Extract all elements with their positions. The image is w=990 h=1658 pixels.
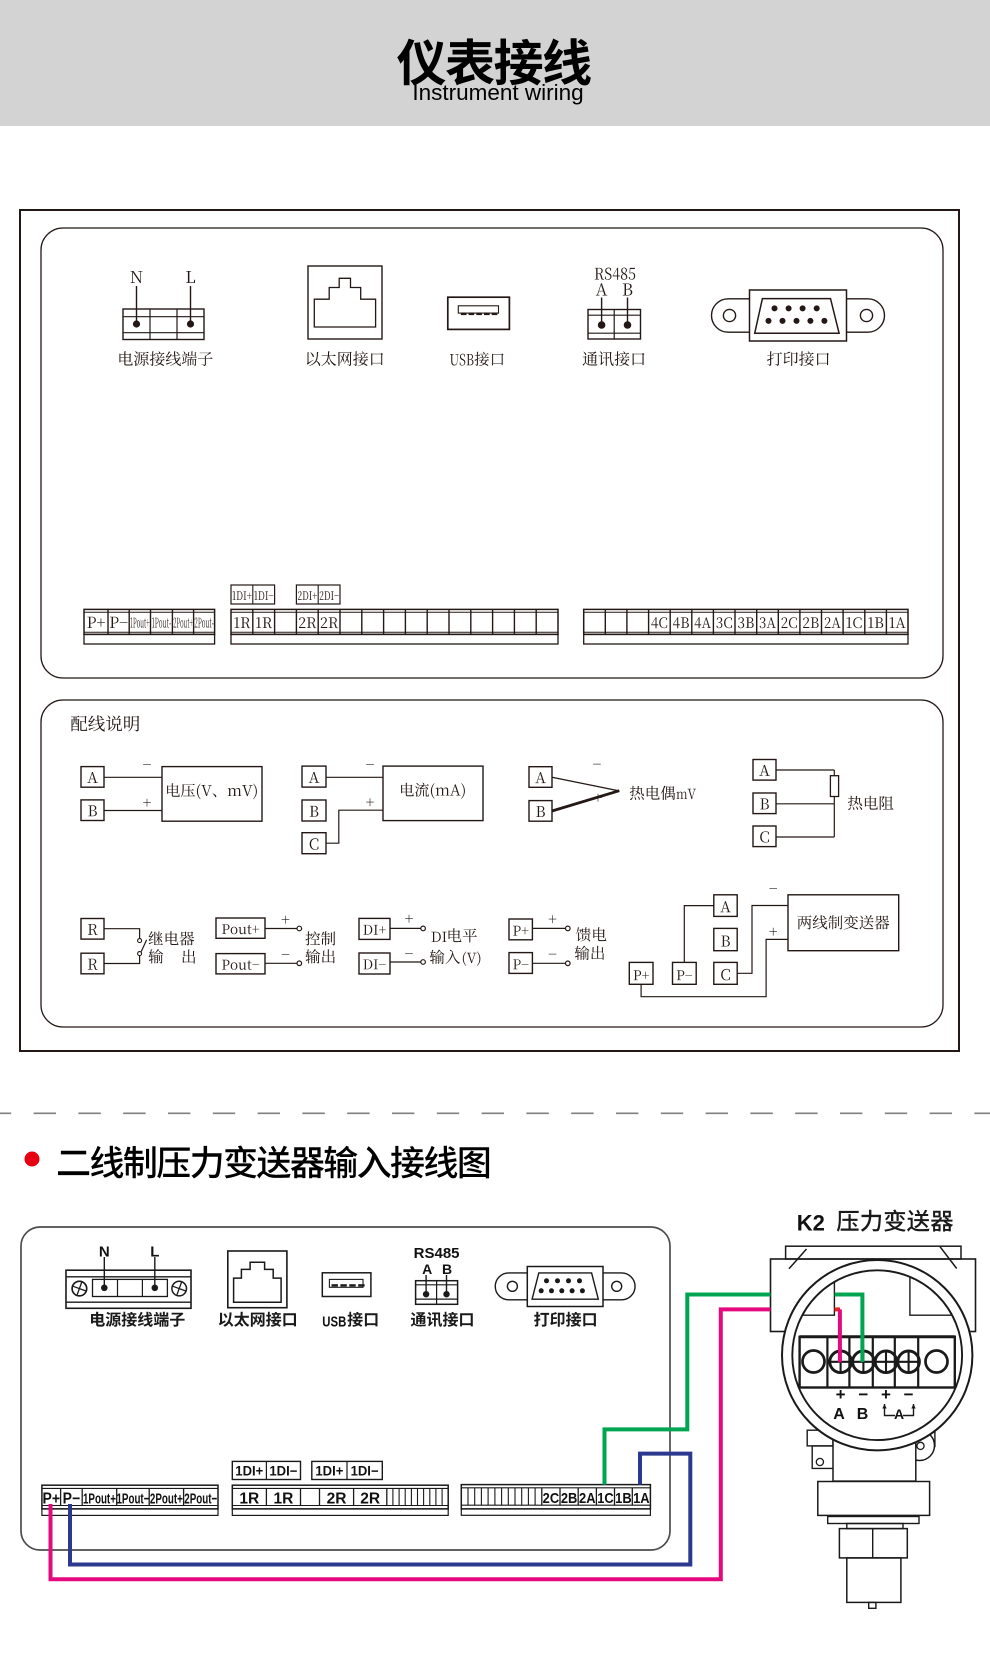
svg-text:1Pout+: 1Pout+ xyxy=(83,1490,116,1507)
svg-text:1A: 1A xyxy=(633,1490,650,1507)
svg-text:L: L xyxy=(150,1244,159,1261)
svg-text:1C: 1C xyxy=(597,1490,614,1507)
svg-text:1R: 1R xyxy=(239,1490,259,1507)
svg-text:N: N xyxy=(99,1244,110,1261)
svg-text:1DI+: 1DI+ xyxy=(235,1463,263,1478)
svg-text:A: A xyxy=(894,1406,904,1422)
svg-text:+: + xyxy=(881,1385,891,1404)
svg-text:B: B xyxy=(857,1406,869,1423)
svg-text:1Pout−: 1Pout− xyxy=(116,1490,149,1507)
svg-text:2B: 2B xyxy=(561,1490,578,1507)
svg-text:1B: 1B xyxy=(615,1490,632,1507)
svg-text:−: − xyxy=(904,1385,914,1404)
svg-text:2C: 2C xyxy=(543,1490,560,1507)
svg-text:+: + xyxy=(836,1385,846,1404)
svg-text:RS485: RS485 xyxy=(414,1245,460,1262)
svg-text:Instrument wiring: Instrument wiring xyxy=(412,80,583,105)
svg-text:1DI−: 1DI− xyxy=(269,1463,297,1478)
svg-text:K2: K2 xyxy=(797,1211,825,1236)
svg-text:B: B xyxy=(442,1261,452,1277)
svg-text:2R: 2R xyxy=(360,1490,380,1507)
svg-text:2R: 2R xyxy=(327,1490,347,1507)
svg-text:1R: 1R xyxy=(274,1490,294,1507)
svg-text:2A: 2A xyxy=(579,1490,596,1507)
svg-text:USB: USB xyxy=(322,1314,346,1330)
svg-text:A: A xyxy=(422,1261,432,1277)
svg-text:1DI−: 1DI− xyxy=(351,1463,379,1478)
svg-text:2Pout+: 2Pout+ xyxy=(150,1490,183,1507)
svg-text:A: A xyxy=(833,1406,845,1423)
svg-text:1DI+: 1DI+ xyxy=(315,1463,343,1478)
svg-text:−: − xyxy=(858,1385,868,1404)
svg-text:2Pout−: 2Pout− xyxy=(184,1490,217,1507)
